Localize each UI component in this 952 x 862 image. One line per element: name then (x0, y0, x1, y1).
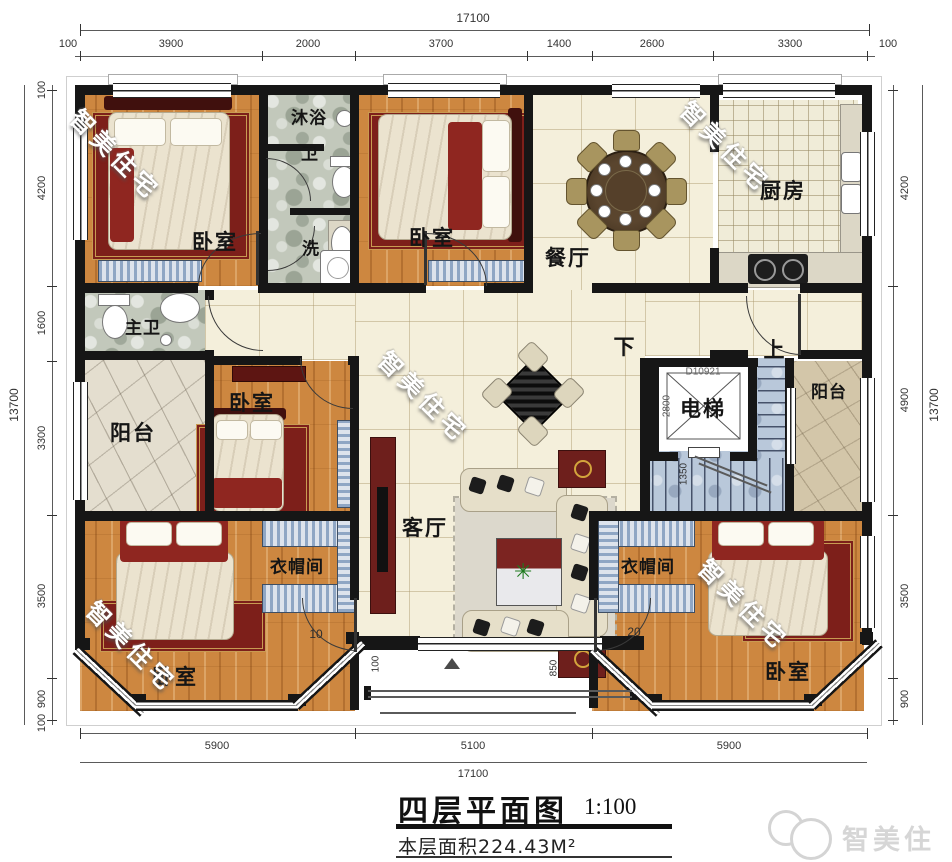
wall-interior (798, 350, 872, 359)
elevator-code: D10921 (685, 367, 720, 378)
stair-width-dim: 1350 (679, 463, 690, 485)
room-label-elevator: 电梯 (680, 393, 726, 423)
dim-tick (888, 678, 898, 679)
door-leaf (256, 231, 259, 285)
room-label-bedroom-bottom-right: 卧室 (765, 656, 811, 686)
dim-left-5: 900 (36, 690, 48, 708)
wall-interior (75, 511, 359, 521)
dim-tick (355, 728, 356, 739)
entry-marker (444, 658, 460, 669)
terrace-rail (368, 690, 632, 692)
room-label-living: 客厅 (402, 512, 448, 542)
dim-tick (80, 24, 81, 36)
window (388, 83, 500, 98)
plate (598, 205, 611, 218)
dim-tick (47, 361, 57, 362)
plate (598, 163, 611, 176)
bed-pillow (768, 522, 814, 546)
room-label-dining: 餐厅 (545, 242, 591, 272)
wall-interior (258, 283, 358, 293)
door-leaf (354, 598, 357, 652)
plant-icon: ✳ (514, 560, 532, 585)
elevator-width-dim: 2800 (662, 395, 673, 417)
room-label-cloakroom-right: 衣帽间 (621, 553, 675, 578)
window-stair (786, 388, 796, 464)
bed-pillow (216, 420, 248, 440)
dim-line (52, 85, 53, 725)
bed-throw (448, 122, 482, 230)
window (723, 83, 835, 98)
dim-right-total: 13700 (927, 388, 941, 421)
dim-tick (80, 51, 81, 61)
bed-pillow (250, 420, 282, 440)
dim-top-total: 17100 (456, 11, 489, 25)
wall-interior (350, 283, 426, 293)
dim-tick (888, 515, 898, 516)
terrace-rail (368, 696, 632, 698)
elevator-wall (650, 358, 659, 461)
dim-tick (355, 51, 356, 61)
elevator-wall (730, 452, 757, 461)
dim-tick (592, 728, 593, 739)
front-dim-right: 850 (549, 660, 560, 677)
dim-top-0: 100 (59, 38, 77, 50)
dim-line (80, 30, 870, 31)
burner (782, 259, 804, 281)
logo-bubble-icon (790, 818, 832, 860)
dim-tick (527, 51, 528, 61)
bed-pillow (170, 118, 222, 146)
area-underline (396, 856, 672, 858)
dim-line (24, 85, 25, 725)
window (860, 378, 875, 502)
burner (754, 259, 776, 281)
room-label-bedroom-top-left: 卧室 (192, 226, 238, 256)
room-label-cloakroom-left: 衣帽间 (270, 553, 324, 578)
plate (619, 155, 632, 168)
title-underline (396, 824, 672, 829)
dim-bottom-2: 5900 (717, 740, 741, 752)
room-label-bedroom-mid: 卧室 (229, 387, 275, 417)
plate (648, 184, 661, 197)
window-bench (98, 260, 202, 282)
dim-tick (867, 728, 868, 739)
wall-interior (640, 358, 650, 513)
dim-tick (869, 24, 870, 36)
wall-interior (524, 90, 533, 286)
bed-pillow (482, 176, 510, 228)
dim-left-1: 4200 (36, 176, 48, 200)
window (113, 83, 231, 98)
door-leaf (798, 294, 801, 354)
dim-tick (47, 720, 57, 721)
wall-interior (589, 511, 598, 600)
dim-left-0: 100 (36, 81, 48, 99)
dim-tick (888, 286, 898, 287)
room-label-balcony-right: 阳台 (811, 378, 847, 403)
wall-interior (75, 283, 198, 293)
stair-flight-right (758, 366, 788, 456)
wall-interior (75, 351, 208, 360)
bed-pillow (176, 522, 222, 546)
dim-top-5: 2600 (640, 38, 664, 50)
plate (619, 213, 632, 226)
wall-interior (205, 350, 214, 520)
window (860, 132, 875, 236)
dim-bottom-1: 5100 (461, 740, 485, 752)
plate (590, 184, 603, 197)
floor-drain (160, 334, 172, 346)
room-label-wash: 洗 (302, 235, 320, 260)
label-stairs-up: 上 (764, 334, 787, 364)
dim-right-1: 4900 (899, 388, 911, 412)
window (860, 536, 875, 628)
floor-area-text: 本层面积224.43M² (398, 832, 577, 859)
dim-top-6: 3300 (778, 38, 802, 50)
dim-tick (47, 90, 57, 91)
bed-throw (212, 478, 282, 508)
wall-interior (800, 283, 872, 293)
room-label-bedroom-top-mid: 卧室 (409, 222, 455, 252)
dim-tick (47, 515, 57, 516)
dim-tick (80, 728, 81, 739)
dim-left-3: 3300 (36, 426, 48, 450)
room-label-master-bath: 主卫 (125, 314, 161, 339)
dim-left-4: 3500 (36, 584, 48, 608)
side-table-decor (574, 460, 592, 478)
wall-interior (710, 350, 748, 359)
dim-line (922, 85, 923, 725)
bath-divider (290, 208, 355, 215)
floor-plan-canvas: ✳ (0, 0, 952, 862)
door-size-right: 20 (627, 625, 640, 639)
plate (639, 205, 652, 218)
door-leaf (594, 598, 597, 652)
dim-tick (713, 51, 714, 61)
bay-window (136, 700, 298, 711)
wall-interior (484, 283, 533, 293)
room-label-wc: 卫 (301, 140, 319, 165)
dim-bottom-total: 17100 (458, 768, 489, 780)
dim-right-0: 4200 (899, 176, 911, 200)
sink-basin (160, 293, 200, 323)
drawing-scale: 1:100 (584, 794, 636, 820)
room-label-balcony-left: 阳台 (110, 417, 156, 447)
wall-interior (350, 511, 359, 600)
dim-left-2: 1600 (36, 311, 48, 335)
window (73, 382, 88, 500)
elevator-wall (650, 452, 678, 461)
bay-window (652, 700, 814, 711)
bed-headboard (104, 96, 232, 110)
kitchen-sink (841, 152, 862, 182)
dim-line (80, 733, 867, 734)
room-label-shower: 沐浴 (291, 104, 327, 129)
dining-chair (666, 178, 687, 205)
dim-line (75, 56, 875, 57)
dining-chair (613, 230, 640, 251)
dresser (232, 366, 306, 382)
terrace-post (364, 686, 371, 700)
dim-top-1: 3900 (159, 38, 183, 50)
dim-top-2: 2000 (296, 38, 320, 50)
dim-tick (262, 51, 263, 61)
bed-pillow (482, 120, 510, 172)
washer-drum (327, 257, 349, 279)
dim-top-3: 3700 (429, 38, 453, 50)
door-size-left: 10 (309, 627, 322, 641)
bed-pillow (718, 522, 764, 546)
window (612, 84, 700, 98)
wall-interior (350, 90, 359, 286)
dim-tick (592, 51, 593, 61)
dim-tick (47, 678, 57, 679)
dim-line (893, 85, 894, 725)
dim-tick (888, 90, 898, 91)
bed-pillow (126, 522, 172, 546)
wall-interior (592, 511, 872, 521)
label-stairs-down: 下 (614, 331, 637, 361)
dining-chair (613, 130, 640, 151)
dim-right-3: 900 (899, 690, 911, 708)
wall-interior (592, 283, 748, 293)
dim-right-2: 3500 (899, 584, 911, 608)
dim-top-7: 100 (879, 38, 897, 50)
logo-text: 智美住宅 (842, 818, 952, 862)
dim-top-4: 1400 (547, 38, 571, 50)
front-dim-left: 100 (371, 656, 382, 673)
elevator-wall (748, 358, 757, 461)
dim-bottom-0: 5900 (205, 740, 229, 752)
tv (377, 487, 388, 572)
wall-interior (205, 356, 302, 365)
dim-line (80, 762, 867, 763)
dim-left-total: 13700 (7, 388, 21, 421)
elevator-door (688, 447, 720, 458)
plate (639, 163, 652, 176)
dim-left-6: 100 (36, 714, 48, 732)
terrace-edge (380, 712, 576, 714)
window-front (418, 637, 602, 651)
dining-chair (566, 178, 587, 205)
dim-tick (47, 286, 57, 287)
dim-tick (867, 51, 868, 61)
dim-tick (888, 720, 898, 721)
kitchen-sink (841, 184, 862, 214)
